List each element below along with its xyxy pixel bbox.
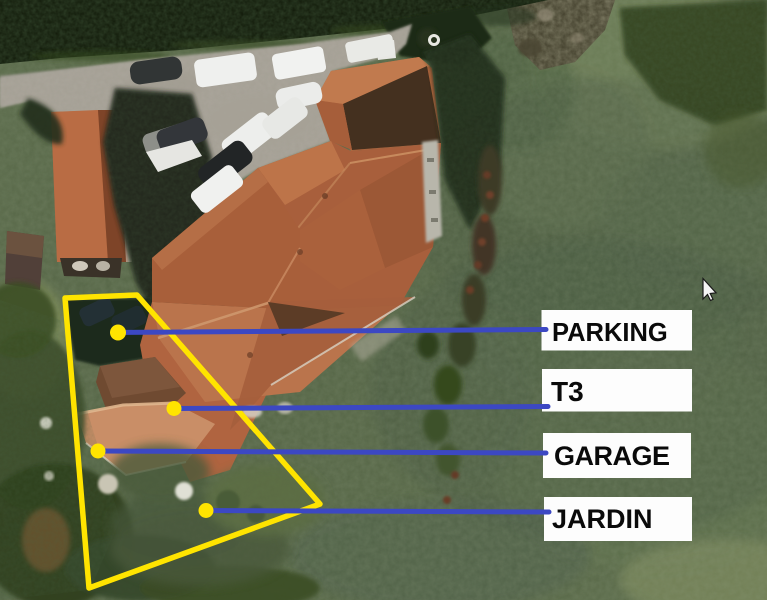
svg-text:GARAGE: GARAGE <box>554 441 670 471</box>
svg-text:JARDIN: JARDIN <box>552 504 653 534</box>
svg-text:PARKING: PARKING <box>552 319 668 347</box>
svg-text:T3: T3 <box>551 376 584 407</box>
